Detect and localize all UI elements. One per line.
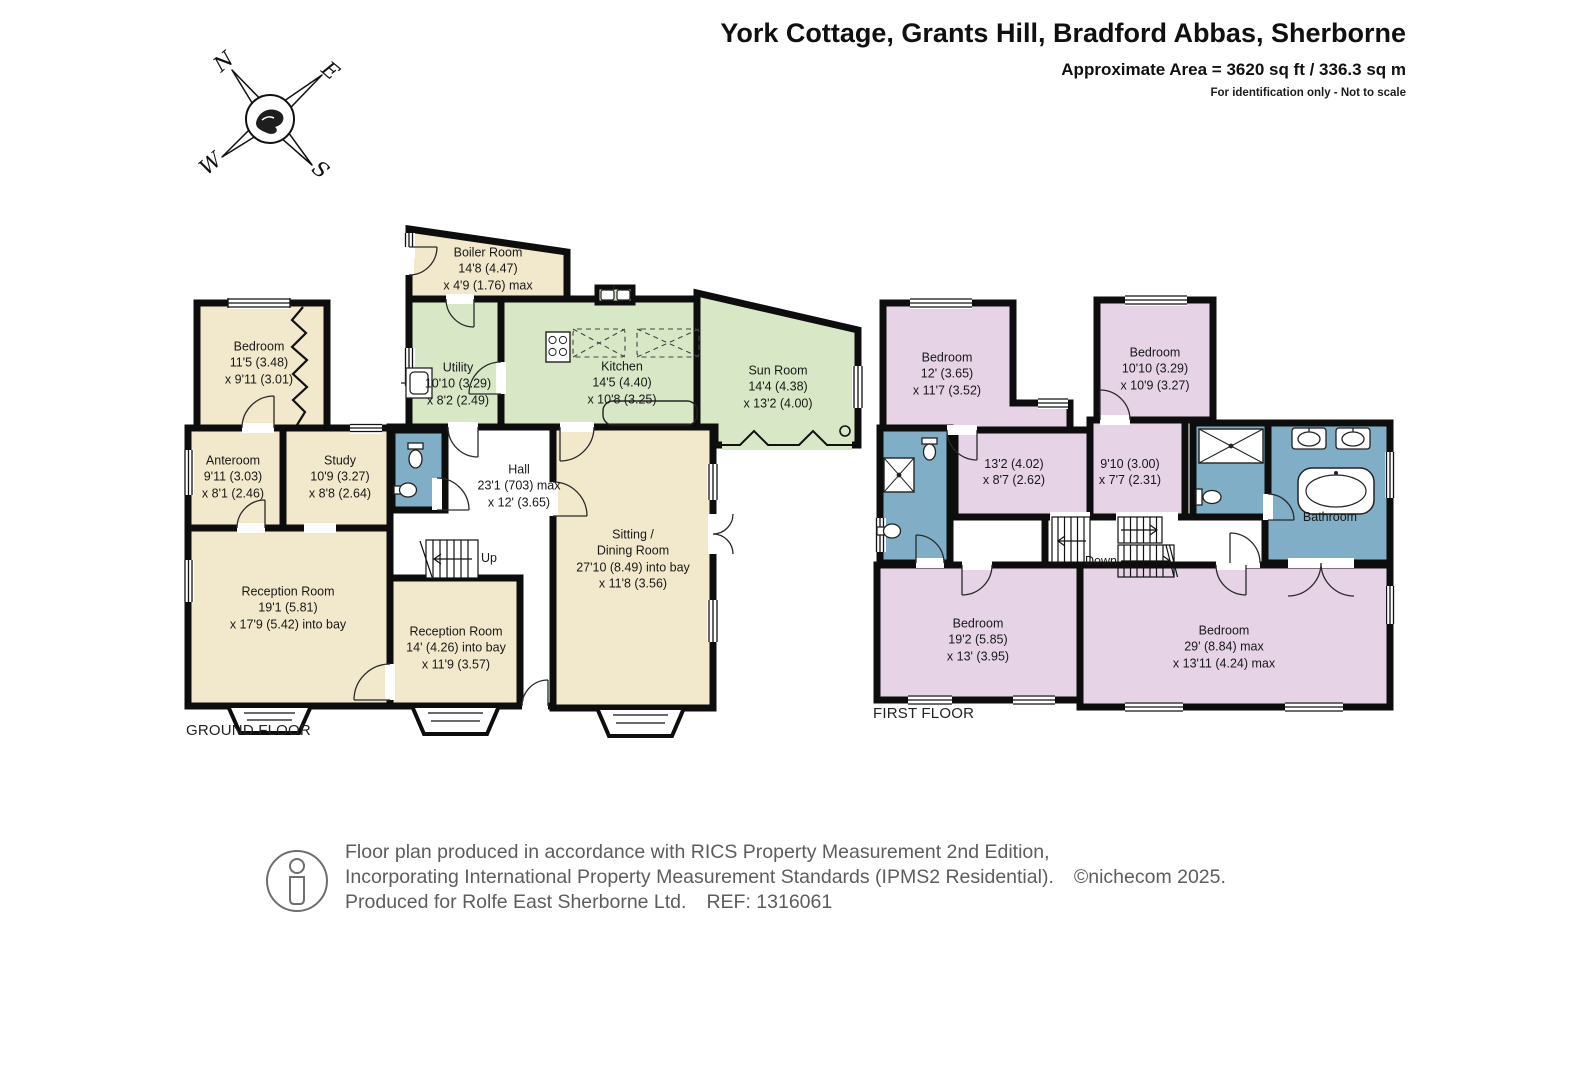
room-label-bedroom-bl: Bedroom19'2 (5.85)x 13' (3.95) bbox=[947, 616, 1009, 665]
footer: Floor plan produced in accordance with R… bbox=[345, 840, 1226, 915]
footer-line-1: Floor plan produced in accordance with R… bbox=[345, 840, 1226, 865]
footer-line-3: Produced for Rolfe East Sherborne Ltd. bbox=[345, 891, 686, 913]
scale-disclaimer: For identification only - Not to scale bbox=[1210, 87, 1406, 99]
room-label-bedroom-g: Bedroom11'5 (3.48)x 9'11 (3.01) bbox=[225, 339, 293, 388]
room-label-boiler: Boiler Room14'8 (4.47)x 4'9 (1.76) max bbox=[443, 245, 532, 294]
compass-west: W bbox=[195, 146, 229, 180]
room-label-utility: Utility10'10 (3.29)x 8'2 (2.49) bbox=[425, 360, 491, 409]
room-label-sun-room: Sun Room14'4 (4.38)x 13'2 (4.00) bbox=[743, 363, 812, 412]
floor-plan-page: N E S W York Cottage, Grants Hill, Bradf… bbox=[0, 0, 1574, 1080]
bathtub-icon bbox=[1298, 468, 1374, 514]
room-label-landing-2: 9'10 (3.00)x 7'7 (2.31) bbox=[1099, 456, 1161, 489]
room-label-bedroom-br: Bedroom29' (8.84) maxx 13'11 (4.24) max bbox=[1173, 623, 1275, 672]
room-label-landing-1: 13'2 (4.02)x 8'7 (2.62) bbox=[983, 456, 1045, 489]
footer-line-2: Incorporating International Property Mea… bbox=[345, 866, 1054, 888]
room-label-kitchen: Kitchen14'5 (4.40)x 10'8 (3.25) bbox=[587, 359, 656, 408]
footer-ref: REF: 1316061 bbox=[706, 891, 832, 913]
first-floor-title: FIRST FLOOR bbox=[873, 705, 974, 722]
room-label-hall: Hall23'1 (703) maxx 12' (3.65) bbox=[478, 462, 561, 511]
stairs-down-label: Down bbox=[1085, 554, 1117, 568]
room-label-bedroom-tl: Bedroom12' (3.65)x 11'7 (3.52) bbox=[913, 350, 981, 399]
compass-south: S bbox=[307, 156, 333, 184]
approximate-area: Approximate Area = 3620 sq ft / 336.3 sq… bbox=[1061, 60, 1406, 80]
room-label-study: Study10'9 (3.27)x 8'8 (2.64) bbox=[309, 453, 371, 502]
stairs-up bbox=[420, 540, 478, 578]
footer-copyright: ©nichecom 2025. bbox=[1074, 866, 1226, 888]
stairs-up-label: Up bbox=[481, 551, 497, 565]
person-icon bbox=[267, 851, 327, 911]
page-title: York Cottage, Grants Hill, Bradford Abba… bbox=[720, 18, 1406, 49]
ground-floor-title: GROUND FLOOR bbox=[186, 722, 311, 739]
room-label-anteroom: Anteroom9'11 (3.03)x 8'1 (2.46) bbox=[202, 453, 264, 502]
room-label-bathroom: Bathroom bbox=[1303, 509, 1357, 525]
room-label-bedroom-tr: Bedroom10'10 (3.29)x 10'9 (3.27) bbox=[1120, 345, 1189, 394]
toilet-icon bbox=[408, 443, 423, 468]
compass-rose-icon: N E S W bbox=[195, 46, 345, 183]
floor-plan-drawing: N E S W bbox=[0, 0, 1574, 1080]
room-label-reception-2: Reception Room14' (4.26) into bayx 11'9 … bbox=[406, 624, 506, 673]
room-label-reception-1: Reception Room19'1 (5.81)x 17'9 (5.42) i… bbox=[230, 584, 346, 633]
room-label-sitting-dining: Sitting /Dining Room27'10 (8.49) into ba… bbox=[576, 527, 690, 592]
compass-east: E bbox=[316, 56, 344, 85]
